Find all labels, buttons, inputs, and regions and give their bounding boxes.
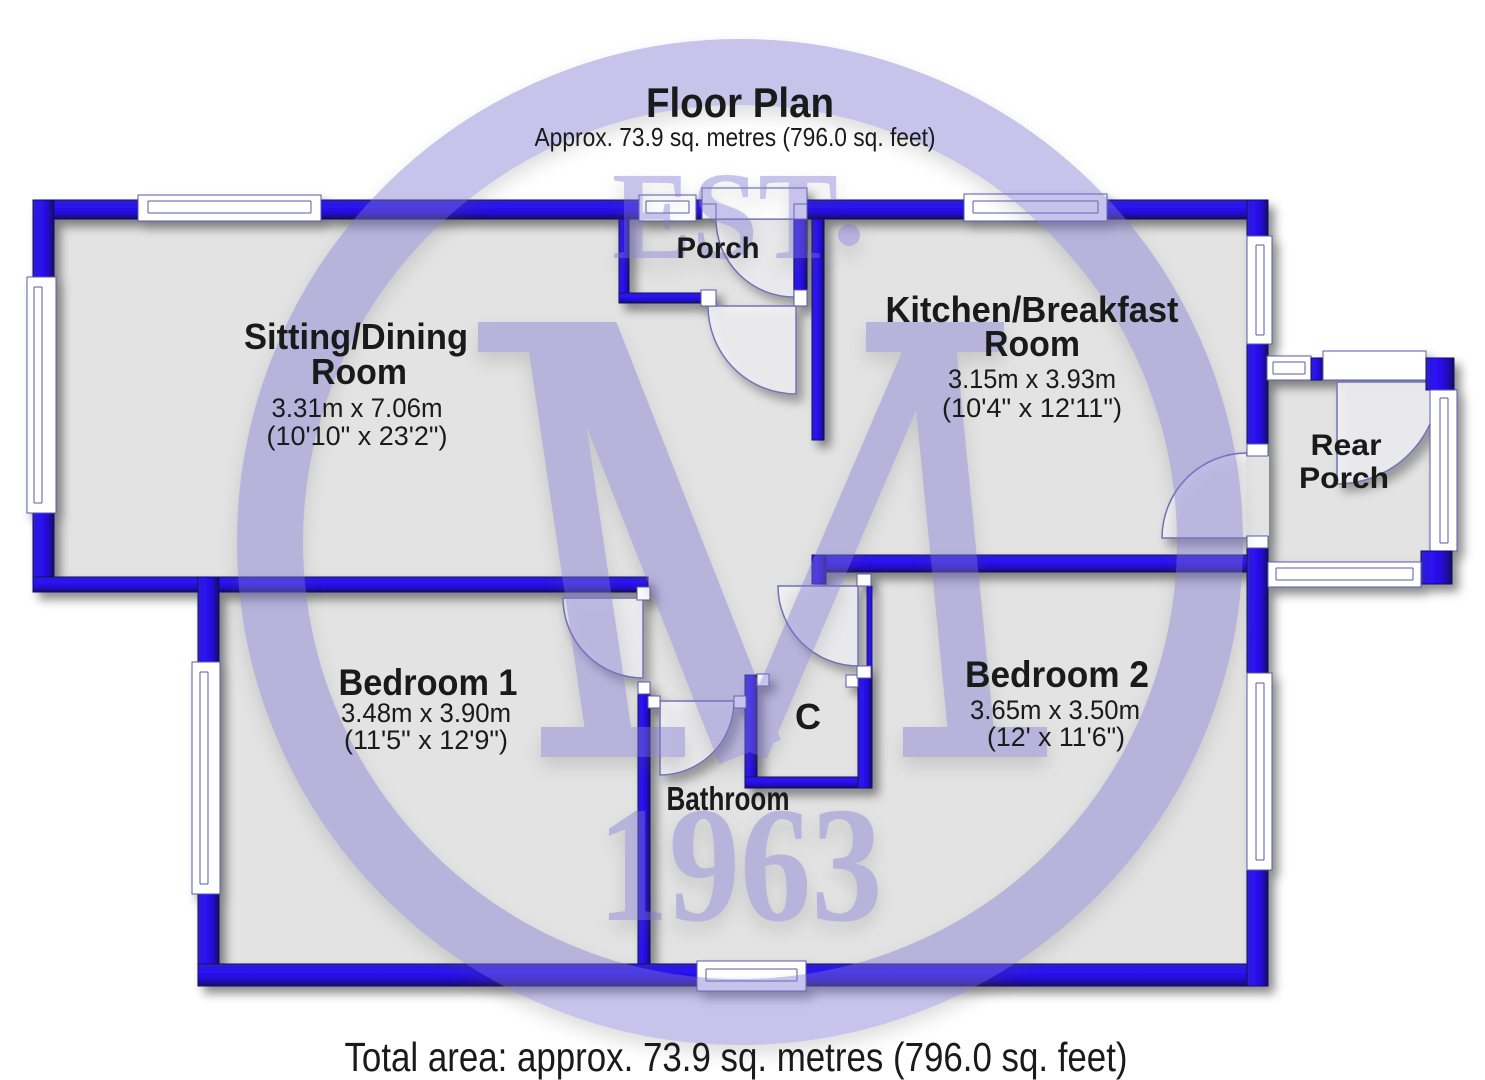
svg-text:EST: EST — [612, 148, 838, 286]
svg-text:3.15m x 3.93m: 3.15m x 3.93m — [948, 364, 1116, 394]
svg-text:(10'4" x 12'11"): (10'4" x 12'11") — [942, 393, 1122, 423]
svg-text:Room: Room — [984, 323, 1080, 364]
svg-text:Bedroom 1: Bedroom 1 — [339, 662, 518, 703]
svg-text:3.31m x 7.06m: 3.31m x 7.06m — [272, 393, 443, 423]
svg-text:(12' x 11'6"): (12' x 11'6") — [987, 722, 1125, 752]
svg-text:C: C — [795, 696, 821, 737]
svg-text:3.65m x 3.50m: 3.65m x 3.50m — [970, 695, 1140, 725]
svg-text:Room: Room — [311, 351, 407, 392]
svg-text:3.48m x 3.90m: 3.48m x 3.90m — [341, 698, 511, 728]
svg-text:Total area: approx. 73.9 sq. m: Total area: approx. 73.9 sq. metres (796… — [345, 1034, 1128, 1080]
svg-text:Approx. 73.9 sq. metres (796.0: Approx. 73.9 sq. metres (796.0 sq. feet) — [535, 122, 936, 152]
svg-text:Bathroom: Bathroom — [667, 780, 790, 817]
svg-text:Floor Plan: Floor Plan — [646, 79, 834, 126]
svg-text:Porch: Porch — [1299, 462, 1389, 495]
svg-text:(10'10" x 23'2"): (10'10" x 23'2") — [267, 421, 448, 451]
svg-text:Rear: Rear — [1311, 429, 1382, 462]
svg-text:Porch: Porch — [677, 232, 760, 265]
svg-text:Bedroom 2: Bedroom 2 — [965, 654, 1149, 695]
svg-text:(11'5" x 12'9"): (11'5" x 12'9") — [344, 725, 508, 755]
